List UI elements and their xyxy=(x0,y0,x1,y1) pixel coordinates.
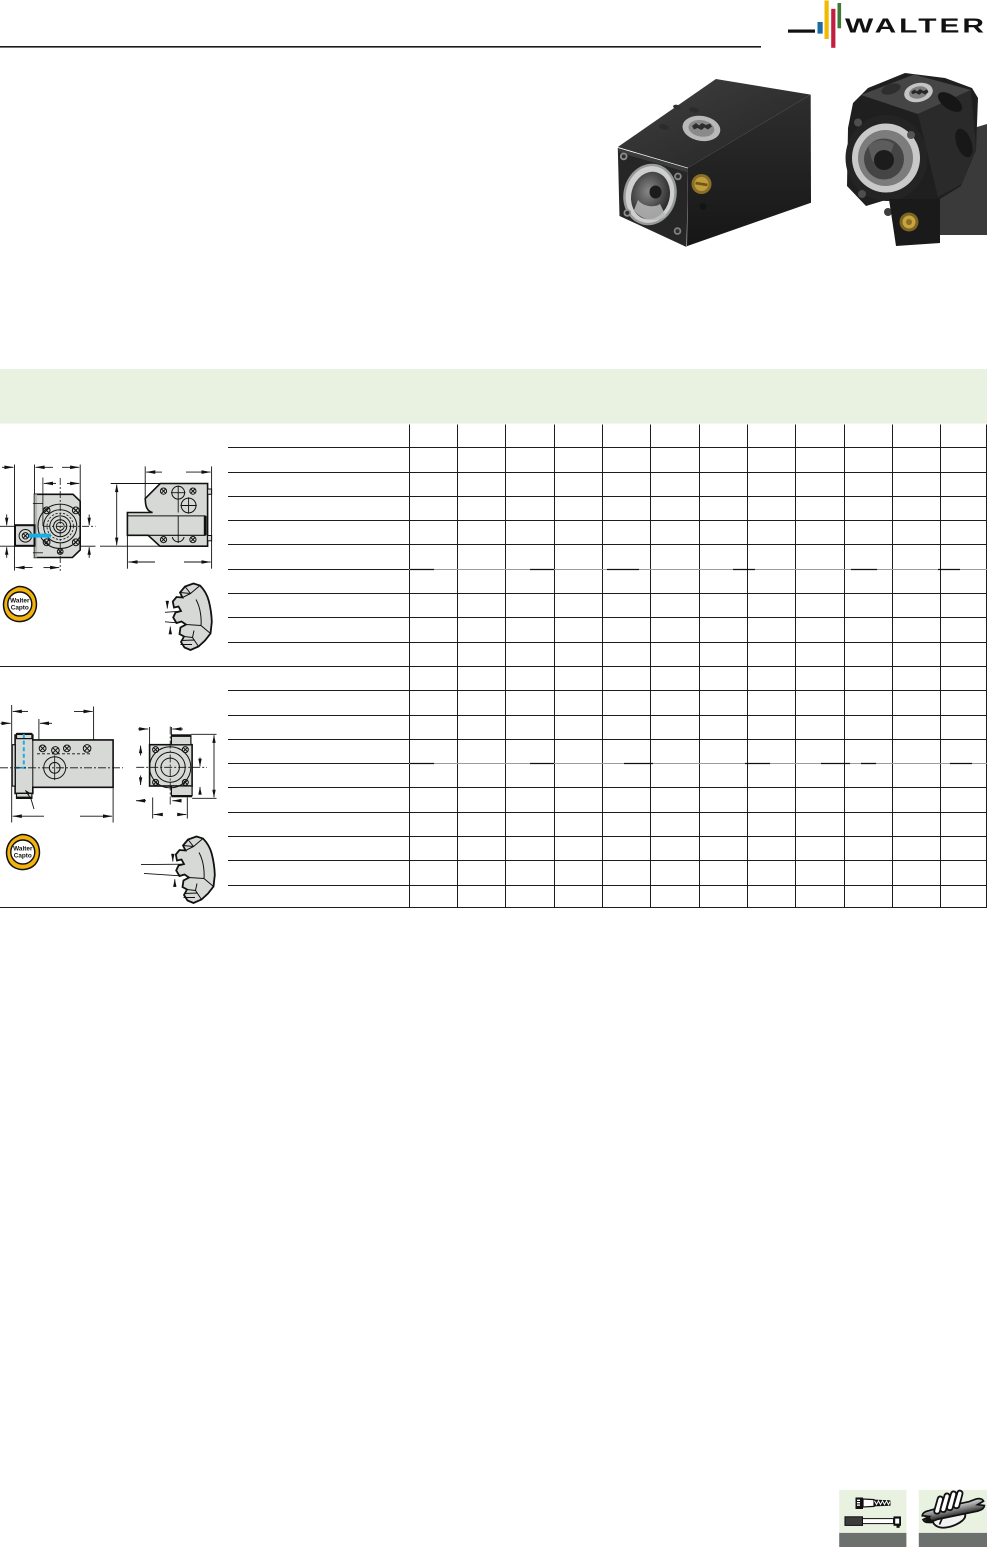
svg-text:Capto: Capto xyxy=(11,604,29,611)
svg-text:Walter: Walter xyxy=(10,597,30,604)
svg-text:Walter: Walter xyxy=(13,845,33,852)
svg-text:WALTER: WALTER xyxy=(845,16,987,38)
svg-text:Capto: Capto xyxy=(14,852,32,859)
